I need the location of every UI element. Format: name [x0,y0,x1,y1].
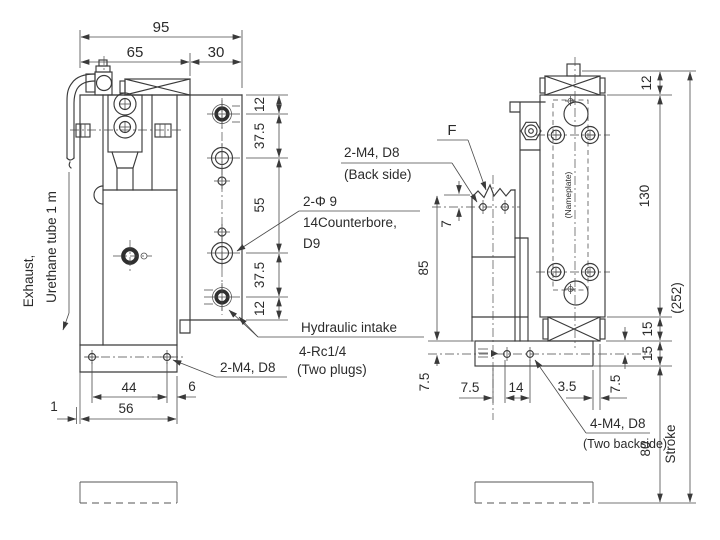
counterbore-label-line1: 2-Φ 9 [303,194,337,209]
counterbore-label-line3: D9 [303,236,320,251]
dim-plate-width: 30 [208,44,225,61]
dim-base-edge: 3.5 [558,379,577,394]
dim-cap-height: 12 [639,75,654,90]
dim-base-holes: 44 [121,380,137,395]
back-mount-label-line1: 2-M4, D8 [344,145,400,160]
exhaust-fitting-icon [67,56,112,168]
base-block [428,341,652,366]
dimension-drawing: 95 65 30 12 37.5 55 37.5 12 44 6 [0,0,720,540]
dim-hole-pitch: 14 [508,380,524,395]
right-view-labels: F 2-M4, D8 (Back side) 4-M4, D8 (Two bac… [341,122,667,451]
valve-bracket [108,93,142,190]
bottom-mount-label-line1: 4-M4, D8 [590,416,646,431]
dim-xbox-height: 15 [640,321,655,336]
right-view: (Nameplate) [341,57,696,503]
dim-base-height: 15 [640,346,655,361]
exhaust-label-line1: Exhaust, [21,255,36,308]
dim-port-bottom: 12 [252,301,267,316]
nameplate-label: (Nameplate) [563,171,573,218]
dim-overall-height: (252) [669,282,684,314]
rod-column [432,185,528,341]
dim-overall-width: 95 [153,19,170,36]
back-mount-label-line2: (Back side) [344,167,412,182]
dim-hole-sp2: 55 [252,197,267,212]
dim-body-height: 130 [637,185,652,208]
left-view: 95 65 30 12 37.5 55 37.5 12 44 6 [21,19,424,503]
side-bolts [70,124,184,137]
mount-thread-label: 2-M4, D8 [220,360,276,375]
base-mount-holes [84,350,186,364]
f-reference-label: F [447,122,456,139]
bottom-mount-label-line2: (Two backside) [583,437,667,451]
dim-port-top: 12 [252,97,267,112]
dim-port-left-offset: 7.5 [417,373,432,392]
dim-offset: 1 [50,399,58,414]
left-view-body [67,56,242,503]
hydraulic-intake-label: Hydraulic intake [301,320,397,335]
front-holes [536,102,610,305]
hydraulic-plugs-note: (Two plugs) [297,362,367,377]
technical-drawing-page: 95 65 30 12 37.5 55 37.5 12 44 6 [0,0,720,540]
dim-base-width: 56 [118,401,133,416]
dim-rod-length: 85 [416,260,431,275]
hex-bolt-icon [521,122,541,139]
dim-port-right-offset: 7.5 [608,375,623,394]
dim-hole-sp1: 37.5 [252,123,267,149]
port-plate-holes [204,98,240,315]
body-bolt-hole [113,240,152,272]
dim-edge: 6 [188,379,196,394]
dim-body-width: 65 [127,44,144,61]
exhaust-label-line2: Urethane tube 1 m [44,191,59,303]
stroke-phantom-outline [80,482,177,503]
dim-hole-sp3: 37.5 [252,262,267,288]
counterbore-label-line2: 14Counterbore, [303,215,397,230]
dim-centerline-offset: 7.5 [461,380,480,395]
dim-hole-from-top: 7 [439,220,454,228]
hydraulic-port-spec: 4-Rc1/4 [299,344,347,359]
left-view-labels: Exhaust, Urethane tube 1 m 2-Φ 9 14Count… [21,172,424,377]
stroke-phantom-outline-right [475,482,593,503]
